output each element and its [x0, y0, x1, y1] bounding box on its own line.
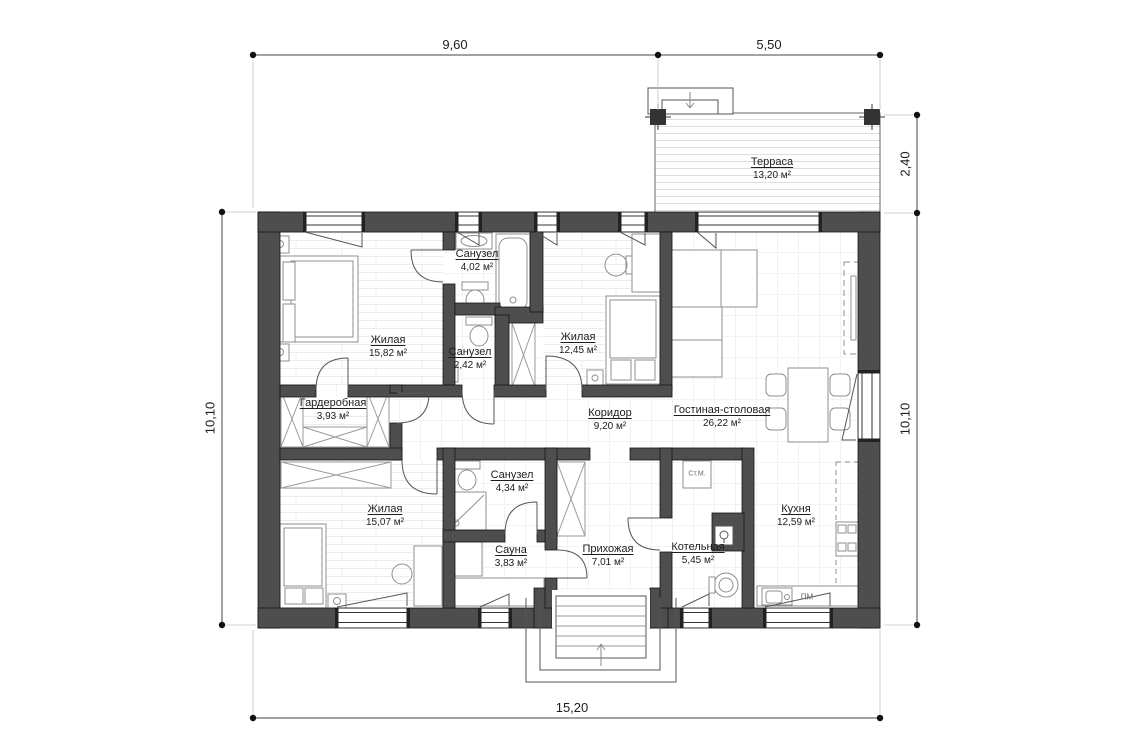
- closet: [557, 462, 585, 536]
- stove: [836, 522, 858, 556]
- room-label-kitchen: Кухня 12,59 м²: [777, 502, 815, 529]
- room-label-corridor: Коридор 9,20 м²: [588, 406, 631, 433]
- closet: [512, 323, 535, 387]
- room-label-bedroom-3: Жилая 15,07 м²: [366, 502, 404, 529]
- room-label-living: Гостиная-столовая 26,22 м²: [674, 403, 771, 430]
- bathtub: [496, 234, 530, 314]
- room-label-sauna: Сауна 3,83 м²: [495, 543, 527, 570]
- room-label-boiler: Котельная 5,45 м²: [671, 540, 724, 567]
- closet: [367, 391, 389, 447]
- dim-top-right: 5,50: [756, 37, 781, 52]
- terrace-deck: [645, 88, 885, 213]
- dim-left: 10,10: [203, 402, 218, 435]
- room-label-wc-3: Санузел 4,34 м²: [491, 468, 534, 495]
- floor-plan-drawing: [0, 0, 1142, 753]
- room-label-bedroom-1: Жилая 15,82 м²: [369, 333, 407, 360]
- dim-bottom: 15,20: [556, 700, 589, 715]
- desk-2: [414, 546, 442, 606]
- closet: [303, 427, 367, 447]
- room-label-wc-2: Санузел 2,42 м²: [449, 345, 492, 372]
- dim-right-upper: 2,40: [898, 151, 913, 176]
- room-label-terrace: Терраса 13,20 м²: [751, 155, 793, 182]
- room-label-hallway: Прихожая 7,01 м²: [583, 542, 634, 569]
- room-label-wc-1: Санузел 4,02 м²: [456, 247, 499, 274]
- washing-machine-label: Ст.М.: [688, 471, 705, 478]
- room-label-wardrobe: Гардеробная 3,93 м²: [300, 396, 367, 423]
- dishwasher-label: ПМ: [801, 593, 813, 602]
- closet: [281, 462, 391, 488]
- floor-plan: Терраса 13,20 м² Жилая 15,82 м² Санузел …: [0, 0, 1142, 753]
- boiler: [709, 573, 738, 597]
- room-label-bedroom-2: Жилая 12,45 м²: [559, 330, 597, 357]
- dim-right-lower: 10,10: [898, 403, 913, 436]
- dim-top-left: 9,60: [442, 37, 467, 52]
